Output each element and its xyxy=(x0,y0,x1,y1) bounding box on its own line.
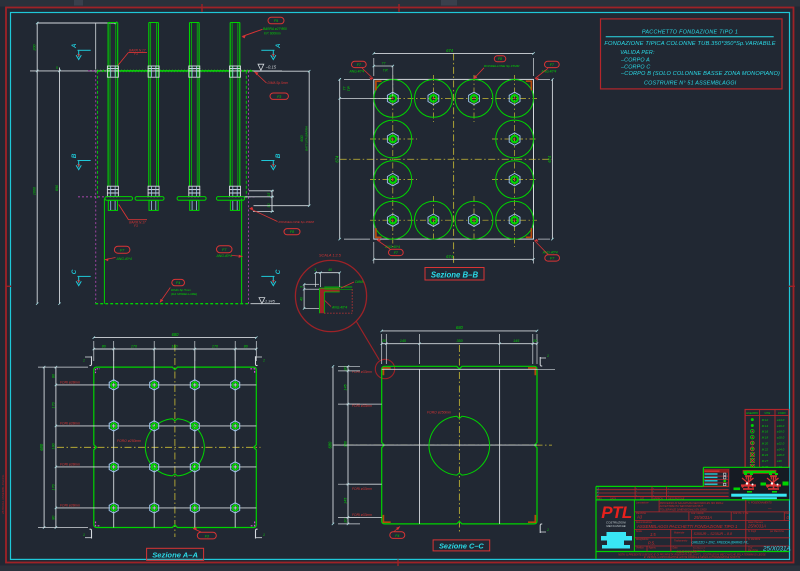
svg-text:200: 200 xyxy=(32,43,36,51)
svg-text:FORO ø250mm: FORO ø250mm xyxy=(117,439,141,443)
svg-text:B: B xyxy=(275,153,282,158)
svg-text:25/X031A: 25/X031A xyxy=(747,524,766,529)
svg-text:Approv.: Approv. xyxy=(648,546,657,549)
svg-text:C: C xyxy=(275,269,282,274)
svg-text:145: 145 xyxy=(400,339,407,343)
svg-text:ø22.0: ø22.0 xyxy=(777,441,785,445)
svg-text:F3: F3 xyxy=(205,534,209,538)
svg-text:N. Identifica: N. Identifica xyxy=(748,538,761,541)
svg-text:M.24: M.24 xyxy=(762,453,769,457)
svg-text:ø14.0: ø14.0 xyxy=(777,418,785,422)
svg-text:VALIDA PER:: VALIDA PER: xyxy=(620,50,655,56)
svg-text:F4: F4 xyxy=(176,281,180,285)
svg-text:ø30: ø30 xyxy=(777,459,782,463)
svg-text:170: 170 xyxy=(131,344,138,348)
svg-text:25/X031A ASSEMBL.PACCH.: 25/X031A ASSEMBL.PACCH. xyxy=(1,474,5,515)
svg-text:F3: F3 xyxy=(277,95,281,99)
svg-text:F8: F8 xyxy=(498,57,502,61)
svg-text:680: 680 xyxy=(172,332,180,337)
svg-text:ø26.0: ø26.0 xyxy=(777,453,785,457)
svg-text:170: 170 xyxy=(52,401,56,408)
svg-text:180: 180 xyxy=(52,442,56,449)
svg-text:M.14: M.14 xyxy=(762,424,769,428)
svg-text:BATTUTA BARRA: BATTUTA BARRA xyxy=(305,126,309,151)
svg-text:145: 145 xyxy=(513,339,520,343)
svg-text:40: 40 xyxy=(300,297,304,301)
svg-text:M.16: M.16 xyxy=(762,430,769,434)
svg-text:1: 1 xyxy=(83,359,85,363)
svg-text:ANG.40*4: ANG.40*4 xyxy=(216,254,232,258)
svg-text:Sezione B–B: Sezione B–B xyxy=(431,270,479,279)
svg-text:ANG.40*4: ANG.40*4 xyxy=(331,306,347,310)
svg-text:600: 600 xyxy=(300,134,304,141)
svg-text:Materiale: Materiale xyxy=(674,531,685,534)
svg-text:FORI ø28mm: FORI ø28mm xyxy=(60,503,80,507)
svg-text:TIP.: TIP. xyxy=(383,69,389,73)
svg-text:FORI ø33mm: FORI ø33mm xyxy=(352,513,372,517)
svg-text:145: 145 xyxy=(344,383,348,390)
svg-text:N. POSIZIONAMENTO: N. POSIZIONAMENTO xyxy=(748,501,772,504)
svg-text:15: 15 xyxy=(267,193,271,197)
svg-text:RONDELLONE Sp.15MM: RONDELLONE Sp.15MM xyxy=(484,64,520,68)
svg-text:M.20: M.20 xyxy=(762,441,769,445)
svg-text:170: 170 xyxy=(212,344,219,348)
svg-text:Trattamento: Trattamento xyxy=(674,540,688,543)
svg-text:GREZZO + ZNC. FREDDA (BARRE FI: GREZZO + ZNC. FREDDA (BARRE FIL. xyxy=(692,540,750,544)
svg-text:COSTRUIRE N° 51 ASSEMBLAGGI: COSTRUIRE N° 51 ASSEMBLAGGI xyxy=(644,80,737,86)
svg-text:—: — xyxy=(767,506,772,510)
svg-text:P.S.: P.S. xyxy=(648,541,655,546)
svg-text:F8: F8 xyxy=(290,230,294,234)
svg-text:170: 170 xyxy=(52,483,56,490)
svg-text:350: 350 xyxy=(344,440,348,447)
svg-text:Sezione C–C: Sezione C–C xyxy=(439,542,484,551)
svg-text:A: A xyxy=(275,43,282,49)
svg-text:−1.345: −1.345 xyxy=(263,299,276,304)
svg-text:890: 890 xyxy=(55,184,59,191)
svg-text:M.27: M.27 xyxy=(762,459,769,463)
svg-text:680: 680 xyxy=(456,325,464,330)
svg-text:1: 1 xyxy=(263,359,265,363)
svg-text:5: 5 xyxy=(56,66,58,70)
svg-text:Cod.: Cod. xyxy=(748,547,753,549)
svg-text:Sezione A–A: Sezione A–A xyxy=(152,551,198,560)
svg-text:TIP.: TIP. xyxy=(347,85,351,91)
svg-text:C: C xyxy=(71,269,78,274)
svg-text:per Macchina: per Macchina xyxy=(769,531,785,533)
svg-text:N. Fogli: N. Fogli xyxy=(748,531,756,533)
svg-text:ANG.40*4: ANG.40*4 xyxy=(349,69,365,73)
svg-text:1:5: 1:5 xyxy=(650,532,656,537)
svg-text:680: 680 xyxy=(39,443,44,451)
svg-text:S355JR – S235JR – 8.8: S355JR – S235JR – 8.8 xyxy=(694,532,733,536)
svg-text:674: 674 xyxy=(334,155,339,163)
svg-text:FORO: FORO xyxy=(778,411,786,415)
svg-text:SCALA 1:2.5: SCALA 1:2.5 xyxy=(319,254,342,258)
svg-text:40: 40 xyxy=(328,268,332,272)
svg-text:1: 1 xyxy=(263,533,265,537)
svg-text:Scala: Scala xyxy=(636,531,642,533)
svg-text:F9: F9 xyxy=(274,19,278,23)
svg-text:FORI ø28mm: FORI ø28mm xyxy=(60,421,80,425)
svg-text:A: A xyxy=(71,43,78,49)
svg-text:180: 180 xyxy=(171,344,178,348)
svg-text:RONDELLONE Sp.15MM: RONDELLONE Sp.15MM xyxy=(279,220,315,224)
svg-text:M.12: M.12 xyxy=(762,418,769,422)
svg-text:DIMA: DIMA xyxy=(355,280,364,284)
svg-text:F4: F4 xyxy=(395,534,399,538)
svg-text:674: 674 xyxy=(446,254,454,259)
svg-text:Verifica: Verifica xyxy=(636,547,644,549)
svg-text:M.18: M.18 xyxy=(762,436,769,440)
svg-text:ASSEMBLAGGI PACCHETTI FONDAZ: ASSEMBLAGGI PACCHETTI FONDAZIONE TIPO 1 xyxy=(636,524,738,529)
svg-text:–CORPO A: –CORPO A xyxy=(620,58,650,64)
svg-text:E' VIETATA LA RIPRODUZIONE ANC: E' VIETATA LA RIPRODUZIONE ANCHE PARZIAL… xyxy=(644,556,741,559)
svg-text:350: 350 xyxy=(456,339,463,343)
svg-text:FORI ø33mm: FORI ø33mm xyxy=(352,487,372,491)
svg-text:F.P. 600mm: F.P. 600mm xyxy=(264,31,281,35)
svg-text:–CORPO B (SOLO COLONNE BASSE Z: –CORPO B (SOLO COLONNE BASSE ZONA MONOPI… xyxy=(620,71,780,77)
svg-text:674: 674 xyxy=(547,155,552,163)
svg-text:1: 1 xyxy=(83,533,85,537)
svg-text:1000: 1000 xyxy=(33,186,37,195)
svg-text:ø16.0: ø16.0 xyxy=(777,424,785,428)
svg-text:FORO ø250mm: FORO ø250mm xyxy=(427,411,451,415)
svg-text:−0.15: −0.15 xyxy=(266,64,277,69)
svg-text:680: 680 xyxy=(328,441,333,449)
svg-text:ESEMPIO: ESEMPIO xyxy=(746,411,758,415)
svg-text:FORI ø33mm: FORI ø33mm xyxy=(352,404,372,408)
svg-text:F3: F3 xyxy=(134,224,138,228)
svg-text:FORI ø33mm: FORI ø33mm xyxy=(352,370,372,374)
svg-text:145: 145 xyxy=(344,497,348,504)
svg-text:PACCHETTO FONDAZIONE TIPO 1: PACCHETTO FONDAZIONE TIPO 1 xyxy=(642,29,738,35)
svg-text:ø24.0: ø24.0 xyxy=(777,447,785,451)
svg-text:MECCANICHE: MECCANICHE xyxy=(606,524,626,528)
svg-text:Macchina: Macchina xyxy=(748,550,759,552)
svg-text:ø20.0: ø20.0 xyxy=(777,436,785,440)
svg-text:ANG.40*4: ANG.40*4 xyxy=(116,257,132,261)
svg-text:1: 1 xyxy=(547,528,549,532)
svg-text:TOLLERANZE DIMENSIONALI EN 139: TOLLERANZE DIMENSIONALI EN 13920 xyxy=(660,509,707,512)
svg-text:Sostituito da: Sostituito da xyxy=(693,549,706,552)
svg-text:–CORPO C: –CORPO C xyxy=(620,64,650,70)
svg-text:674: 674 xyxy=(446,48,454,53)
svg-text:PTL: PTL xyxy=(601,503,632,522)
svg-text:VITE: VITE xyxy=(764,411,770,415)
svg-text:FONDAZIONE TIPICA COLONNE TUB.: FONDAZIONE TIPICA COLONNE TUB.350*350*Sp… xyxy=(604,41,775,47)
svg-text:A3: A3 xyxy=(636,515,643,520)
svg-text:FORI ø28mm: FORI ø28mm xyxy=(60,380,80,384)
svg-text:ø18.0: ø18.0 xyxy=(777,430,785,434)
svg-text:25/X031A: 25/X031A xyxy=(762,546,791,553)
svg-text:(DA MODELLARE): (DA MODELLARE) xyxy=(171,292,197,296)
svg-text:FORI ø28mm: FORI ø28mm xyxy=(60,462,80,466)
svg-text:B: B xyxy=(71,153,78,158)
svg-text:1: 1 xyxy=(547,354,549,358)
svg-text:Lavorazione: Lavorazione xyxy=(636,502,649,504)
svg-text:M.22: M.22 xyxy=(762,447,769,451)
svg-text:Cod. P.L. x. Ra: Cod. P.L. x. Ra xyxy=(733,513,749,515)
svg-text:3: 3 xyxy=(300,286,304,288)
svg-text:3: 3 xyxy=(314,268,316,272)
svg-text:25/X031A: 25/X031A xyxy=(693,515,712,520)
svg-text:DIMA Sp.5mm: DIMA Sp.5mm xyxy=(268,81,289,85)
